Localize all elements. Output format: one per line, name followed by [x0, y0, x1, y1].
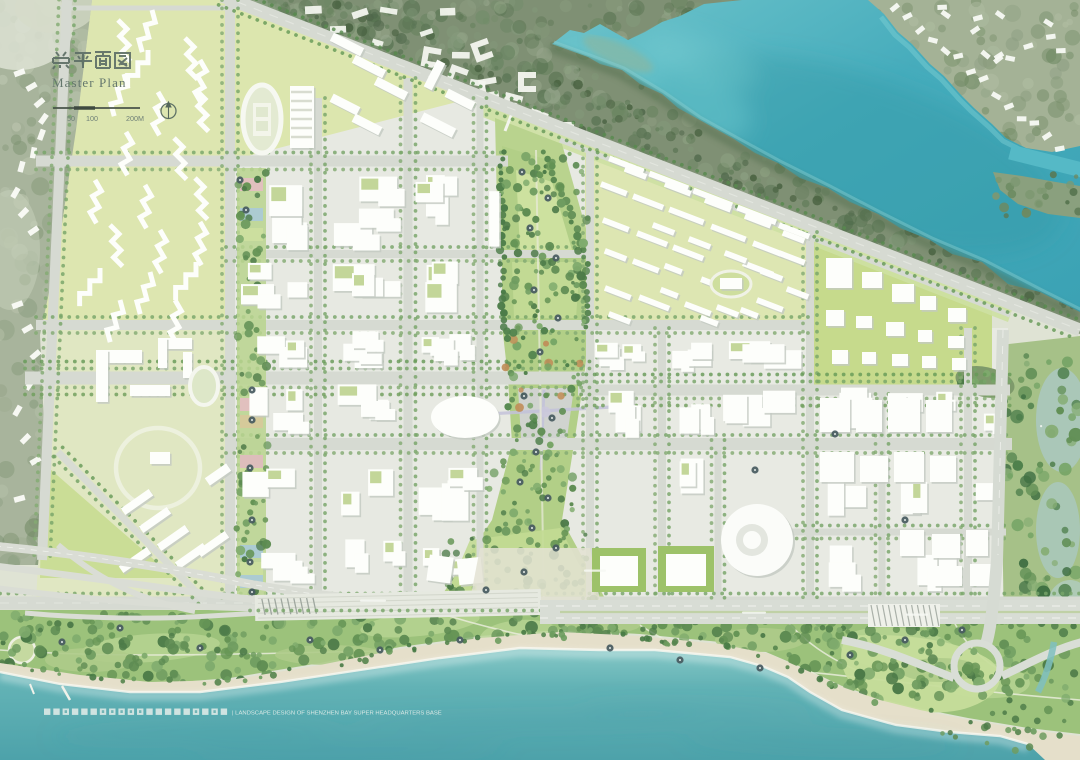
svg-text:| LANDSCAPE DESIGN OF SHENZHEN: | LANDSCAPE DESIGN OF SHENZHEN BAY SUPER…: [232, 711, 442, 717]
svg-text:100: 100: [86, 114, 98, 123]
svg-text:50: 50: [67, 114, 75, 123]
svg-text:Master Plan: Master Plan: [52, 75, 127, 90]
svg-text:200M: 200M: [126, 114, 144, 123]
